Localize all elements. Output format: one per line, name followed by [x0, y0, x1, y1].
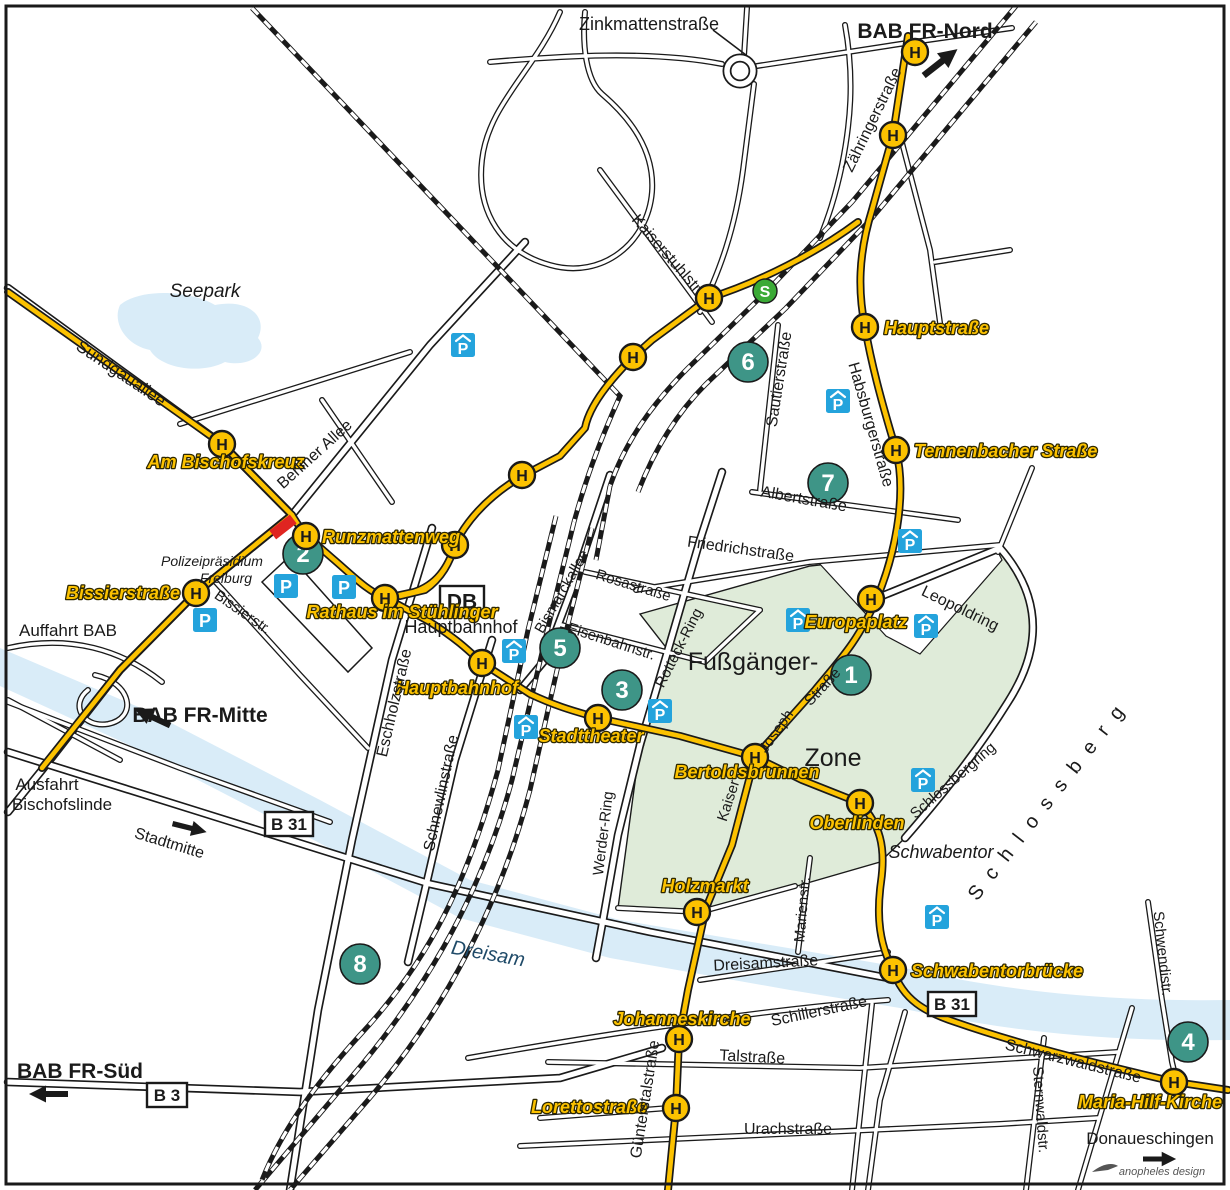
tram-stop-h-20: H [670, 1101, 682, 1118]
parking-letter: P [280, 577, 292, 597]
tram-stop-h-10: H [190, 586, 202, 603]
numbered-marker-label-5: 5 [553, 635, 566, 662]
tram-stop-h-19: H [673, 1032, 685, 1049]
numbered-marker-label-4: 4 [1181, 1029, 1195, 1056]
parking-garage-letter: P [932, 913, 943, 930]
tram-stop-h-0: H [909, 45, 921, 62]
stop-label-runzmattenweg: Runzmattenweg [322, 527, 460, 547]
tram-stop-h-4: H [627, 350, 639, 367]
stop-label-bissierstra-e: Bissierstraße [66, 583, 180, 603]
area-label-fu-g-nger-: Fußgänger- [688, 648, 819, 676]
tram-stop-h-5: H [516, 468, 528, 485]
area-label-zone: Zone [805, 744, 862, 772]
numbered-marker-label-8: 8 [353, 951, 366, 978]
numbered-marker-label-6: 6 [741, 349, 754, 376]
sbahn-letter: S [760, 284, 771, 301]
map-canvas: PPPPPPPPPPPPPS12345678HHHHHHHHHHHHHHHHHH… [0, 0, 1230, 1190]
numbered-marker-label-7: 7 [821, 470, 834, 497]
parking-garage-letter: P [793, 616, 804, 633]
parking-garage-letter: P [918, 776, 929, 793]
parking-garage-letter: P [458, 341, 469, 358]
stop-label-johanneskirche: Johanneskirche [613, 1009, 750, 1029]
tram-stop-h-7: H [300, 529, 312, 546]
street-label-talstra-e: Talstraße [719, 1047, 786, 1067]
area-label-bab-fr-nord: BAB FR-Nord [857, 20, 992, 43]
tram-stop-h-2: H [859, 320, 871, 337]
numbered-marker-label-1: 1 [844, 662, 857, 689]
area-label-auffahrt-bab: Auffahrt BAB [19, 621, 117, 640]
area-label-polizeipr-sidium: Polizeipräsidium [161, 553, 263, 569]
tram-stop-h-16: H [854, 796, 866, 813]
parking-garage-letter: P [655, 707, 666, 724]
stop-label-am-bischofskreuz: Am Bischofskreuz [146, 452, 304, 472]
street-label-zinkmattenstra-e: Zinkmattenstraße [579, 14, 719, 34]
parking-garage-letter: P [833, 397, 844, 414]
tram-stop-h-9: H [890, 443, 902, 460]
tram-stop-h-18: H [887, 963, 899, 980]
parking-garage-letter: P [921, 622, 932, 639]
stop-label-lorettostra-e: Lorettostraße [531, 1097, 647, 1117]
stop-label-oberlinden: Oberlinden [809, 813, 904, 833]
tram-stop-h-17: H [691, 905, 703, 922]
parking-garage-letter: P [521, 723, 532, 740]
stop-label-stadttheater: Stadttheater [538, 726, 644, 746]
area-label-seepark: Seepark [170, 281, 242, 302]
stop-label-hauptbahnhof: Hauptbahnhof [396, 678, 520, 698]
parking-letter: P [199, 611, 211, 631]
area-label-ausfahrt: Ausfahrt [15, 775, 79, 794]
stop-label-europaplatz: Europaplatz [804, 612, 907, 632]
parking-garage-letter: P [905, 537, 916, 554]
tram-stop-h-3: H [703, 291, 715, 308]
stop-label-tennenbacher-stra-e: Tennenbacher Straße [914, 441, 1097, 461]
designer-logo-text: anopheles design [1119, 1166, 1205, 1178]
tram-stop-h-12: H [476, 656, 488, 673]
parking-letter: P [338, 578, 350, 598]
area-label-freiburg: Freiburg [200, 570, 252, 586]
stop-label-hauptstra-e: Hauptstraße [884, 318, 989, 338]
road-sign-text-1: B 31 [934, 995, 970, 1014]
tram-stop-h-13: H [865, 592, 877, 609]
numbered-marker-label-3: 3 [615, 677, 628, 704]
area-label-schwabentor: Schwabentor [888, 842, 994, 862]
road-sign-text-0: B 31 [271, 815, 307, 834]
stop-label-holzmarkt: Holzmarkt [661, 876, 749, 896]
area-label-donaueschingen: Donaueschingen [1086, 1129, 1214, 1148]
freiburg-city-map: PPPPPPPPPPPPPS12345678HHHHHHHHHHHHHHHHHH… [0, 0, 1230, 1190]
road-sign-text-2: B 3 [154, 1086, 180, 1105]
stop-label-schwabentorbr-cke: Schwabentorbrücke [911, 961, 1083, 981]
parking-garage-letter: P [509, 647, 520, 664]
tram-stop-h-1: H [887, 128, 899, 145]
area-label-hauptbahnhof: Hauptbahnhof [404, 617, 518, 637]
area-label-bab-fr-s-d: BAB FR-Süd [17, 1060, 143, 1083]
stop-label-maria-hilf-kirche: Maria-Hilf-Kirche [1078, 1092, 1222, 1112]
stop-label-bertoldsbrunnen: Bertoldsbrunnen [674, 762, 819, 782]
tram-stop-h-21: H [1168, 1075, 1180, 1092]
area-label-bischofslinde: Bischofslinde [12, 795, 112, 814]
street-label-urachstra-e: Urachstraße [744, 1121, 832, 1138]
